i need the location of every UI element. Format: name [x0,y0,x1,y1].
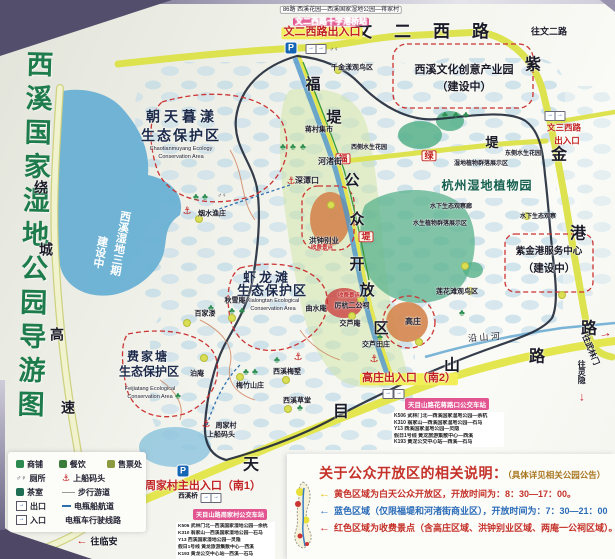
bus-route: K506 武林门北—西溪国家湿地公园—余杭 [394,413,502,420]
parking-icon: P [286,43,297,54]
xialongtan-en1: Xialongtan Ecological [247,299,300,305]
tree-icon: ♣ [175,392,181,401]
shentankou: 深潭口 [295,177,319,185]
tree-icon: ♣ [290,143,296,152]
legend-label: 餐饮 [70,459,86,470]
open-area-notice-panel: 关于公众开放区的相关说明：（具体详见相关公园公告） ←黄色区域为白天公众开放区，… [287,454,615,559]
baijialou: 百家溇 [195,310,216,317]
xialongtan-2: 生态保护区 [237,284,307,298]
bus-station-badge: 天目山路周家村公交车站 [193,509,267,520]
legend-row: →出口电瓶船航道 [16,499,142,513]
road-wener-west: 文二西路 [355,23,511,41]
dir-to-lingyin: 往灵隐 [577,360,585,384]
exit-icon: → [211,493,222,503]
bus-route: K193 黄龙公交中心站—西溪—石马 [394,439,502,446]
shop-icon [16,460,24,468]
photo-edge-left [0,380,5,530]
boat-icon [62,505,71,507]
road-zijingang-3: 港 [570,227,586,244]
legend-label: 步行游道 [78,487,110,498]
path-icon [62,492,75,493]
aquatic-plant-display: 水生植物群落展示区 [413,221,467,227]
feijiatang-2: 生态保护区 [119,366,179,379]
road-tianmushan-1: 天 [243,458,259,475]
bus-station-zhoujiacun: 天目山路周家村公交车站 K506 武林门北—西溪国家湿地公园—余杭K310 翁家… [176,504,275,559]
legend-row: →入口电瓶车行驶线路 [16,513,142,527]
notice-bullet-text: 蓝色区域（仅限福堤和河渚街商业区），开放时间为：7：30—21：00 [334,504,608,517]
xixi-caotang: 西溪草堂 [283,397,311,404]
xialongtan-en2: Conservation Area [250,307,295,313]
poi-dot [228,314,236,322]
notice-arrow-icon: ← [319,505,330,517]
poi-dot [236,373,244,381]
legend-row: ♂♀厕所⚓上船码头 [16,471,142,485]
legend-label: 入口 [30,515,46,526]
station-badge-top: 文二西路十字港桥站 [293,18,369,26]
bus-route: K310 翁家山—西溪国家湿地公园—石马 [178,530,273,537]
boarding-dock: 上船码头 [207,431,235,438]
tree-icon: ♣ [193,193,199,202]
boan: 泊庵 [190,370,204,377]
notice-bullet: ←蓝色区域（仅限福堤和河渚街商业区），开放时间为：7：30—21：00 [319,504,611,517]
bus-route: Y13 西溪国家湿地公园—灵隐 [394,426,502,433]
fudi-badge-2: 堤 [358,231,373,242]
chaotianmuyang-en1: Chaotianmuyang Ecology [150,147,213,153]
legend-label: 售票处 [118,459,142,470]
notice-bullet-text: 黄色区域为白天公众开放区，开放时间为：8：30—17：00。 [334,487,576,500]
dir-to-wenerlu: 往文二路 [531,27,567,36]
zjg-service-1: 紫金港服务中心 [516,247,583,257]
tree-icon: ♣ [453,111,459,120]
tree-icon: ♣ [243,368,249,377]
bus-route: K506 武林门北—西溪国家湿地公园—余杭 [178,523,273,530]
bus-station-badge: 天目山路花蒋路口公交车站 [405,398,489,410]
map-poster: 西溪国家湿地公园导游图 PP→→♂♀→→→→→→⚓⚓⚓⚓⚓♂♀♣♣♣♣♣♣♣♣♣… [0,0,615,559]
creative-park-1: 西溪文化创意产业园 [415,65,514,77]
legend-label: 厕所 [30,473,46,484]
notice-minimap [290,479,316,551]
parking-icon: P [178,466,189,477]
tree-icon: ♣ [459,309,465,318]
jiaoluan: 交芦庵 [340,320,361,327]
food-icon [59,460,67,468]
hongzhong-bieye: 洪钟别业 [309,237,339,245]
road-tianmushan-2: 目 [333,405,349,422]
bus-note-top: 86路 西溪花园—西溪国家湿地公园—蒋家村 [280,6,402,14]
poi-dot [200,354,208,362]
tree-icon: ♣ [463,111,469,120]
wc-icon: ♂♀ [16,475,27,482]
garden-blob [398,121,442,149]
yanshui-yuzhuang: 烟水渔庄 [198,210,226,217]
tree-icon: ♣ [239,307,245,316]
xixi-bridge: 西溪桥 [178,494,198,501]
underwater-gallery: 水下生态观察廊 [430,204,472,210]
dir-to-linan: 往临安 [90,537,117,546]
feijiatang-en2: Conservation Area [127,395,172,401]
enter-icon: → [16,515,27,525]
legend-row: 茶室步行游道 [16,485,142,499]
legend-item-boat: 电瓶船航道 [62,501,114,512]
chaotianmuyang-2: 生态保护区 [141,129,221,144]
xixi-meishu: 西溪梅墅 [273,368,301,375]
notice-title-note: （具体详见相关公园公告） [508,470,606,480]
west-water-garden: 西侧水生花园 [351,145,387,151]
open-area-5: 区 [373,321,388,337]
dock-anchor-icon: ⚓ [294,353,303,363]
road-tianmushan-3: 山 [444,359,460,376]
bus-route: 假日1号线 黄龙旅游集散中心—西溪 [394,433,502,440]
exit-icon: → [555,111,566,121]
legend-label: 茶室 [27,487,43,498]
tree-icon: ♣ [202,193,208,202]
legend-label: 上船码头 [73,473,105,484]
qushuian: 曲水庵 [306,305,327,312]
bus-route: 假日1号线 黄龙旅游集散中心—西溪 [178,544,273,551]
bus-route: K193 黄龙公交中心站—西溪—石马 [178,551,273,558]
entrance-wensan-2: 出入口 [554,137,580,146]
tree-icon: ♣ [274,356,280,365]
notice-bullet-text: 红色区域为收费景点（含高庄区域、洪钟别业区域、两庵一公祠区域）。 [334,521,615,534]
qianjinyang-bird-area: 千金漾观鸟区 [331,64,373,71]
tea-icon [16,488,24,496]
legend-item-cart: 电瓶车行驶线路 [62,515,114,526]
legend-label: 电瓶船航道 [74,501,114,512]
ludi-badge: 绿 [421,150,436,161]
road-raocheng-3: 高 [50,328,64,343]
chaotianmuyang-1: 朝天暮漾 [146,110,218,125]
exit-icon: → [316,44,327,54]
poi-dot [348,312,356,320]
dock-anchor-icon: ⚓ [370,355,379,365]
dir-to-wulinmen-arrow: → [597,325,613,341]
anchor-icon: ⚓ [62,473,70,484]
tree-icon: ♣ [297,404,303,413]
legend-box: 商铺餐饮售票处♂♀厕所⚓上船码头茶室步行游道→出口电瓶船航道→入口电瓶车行驶线路 [8,452,146,532]
notice-title: 关于公众开放区的相关说明： [319,465,508,481]
bus-route: Y13 西溪国家湿地公园—灵隐 [178,537,273,544]
entrance-wensan-1: 文三西路 [547,124,581,133]
notice-bullets: ←黄色区域为白天公众开放区，开放时间为：8：30—17：00。←蓝色区域（仅限福… [319,487,611,534]
legend-item-tea: 茶室 [16,487,62,498]
zjg-service-2: （建设中） [523,263,576,274]
legend-item-path: 步行游道 [62,487,114,498]
fudi-1: 福 [305,77,320,93]
toilet-icon: ♂♀ [218,193,227,199]
paid-spot-2: 收费景点 [338,294,360,300]
zhoujiacun: 周家村 [216,422,237,429]
open-area-3: 开 [349,257,364,273]
legend-item-shop: 商铺 [16,459,59,470]
tree-icon: ♣ [252,368,258,377]
open-area-2: 众 [349,212,364,228]
bus-route: K310 翁家山—西溪国家湿地公园—石马 [394,420,502,427]
legend-row: 商铺餐饮售票处 [16,457,142,471]
open-area-1: 公 [344,173,359,189]
bus-route-list: K506 武林门北—西溪国家湿地公园—余杭K310 翁家山—西溪国家湿地公园—石… [392,412,504,447]
ludi-di: 堤 [485,136,498,150]
road-raocheng-2: 城 [39,243,53,258]
hezhu-street: 河渚街 [318,158,342,166]
dock-anchor-icon: ⚓ [202,420,211,430]
legend-item-enter: →入口 [16,515,62,526]
tree-icon: ♣ [300,143,306,152]
dir-to-lingyin-arrow: ↓ [579,391,585,404]
open-area-4: 放 [359,283,374,299]
chaotianmuyang-en2: Conservation Area [158,155,203,161]
poi-dot [415,338,423,346]
poi-dot [183,319,191,327]
legend-item-wc: ♂♀厕所 [16,473,62,484]
dock-anchor-icon: ⚓ [183,207,192,217]
legend-item-exit: →出口 [16,501,62,512]
legend-item-anchor: ⚓上船码头 [62,473,114,484]
entrance-wener: 文二西路出入口 [282,27,363,39]
toilet-icon: ♂♀ [330,47,339,53]
jiaolu-tianzhuang: 交芦田庄 [362,341,390,348]
dir-to-linan-arrow: ← [77,536,88,548]
east-water-garden: 东侧水生花园 [505,151,541,157]
feijiatang-en1: Feijiatang Ecological [125,387,175,393]
road-zijingang-2: 金 [551,148,567,165]
poi-dot [327,201,335,209]
poi-dot [461,262,469,270]
lihang-ergongci: 厉杭二公祠 [335,302,370,309]
ticket-icon [107,460,115,468]
paid-spot-1: 收费景点 [311,246,333,252]
notice-bullet: ←黄色区域为白天公众开放区，开放时间为：8：30—17：00。 [319,487,611,500]
exit-icon: → [16,501,27,511]
road-raocheng-4: 速 [61,401,75,416]
legend-label: 出口 [30,501,46,512]
legend-label: 电瓶车行驶线路 [65,515,121,526]
entrance-zhoujiacun: 周家村主出入口（南1） [145,481,261,493]
creative-park-2: （建设中） [437,82,492,94]
tree-icon: ♣ [280,143,286,152]
road-tianmushan-4: 路 [529,350,545,367]
notice-bullet: ←红色区域为收费景点（含高庄区域、洪钟别业区域、两庵一公祠区域）。 [319,521,611,534]
bus-route-list: K506 武林门北—西溪国家湿地公园—余杭K310 翁家山—西溪国家湿地公园—石… [176,522,275,559]
legend-item-ticket: 售票处 [107,459,142,470]
legend-item-food: 餐饮 [59,459,107,470]
notice-arrow-icon: ← [319,522,330,534]
qiuxuean: 秋雪庵 [225,297,246,304]
road-raocheng-1: 绕 [34,181,48,196]
poi-dot [284,405,292,413]
lianhuatan-bird-area: 莲花滩观鸟区 [436,288,478,295]
road-zijingang-1: 紫 [525,58,541,75]
meizhu-shanzhuang: 梅竹山庄 [236,382,264,389]
botanical-garden: 杭州湿地植物园 [441,180,532,193]
legend-label: 商铺 [27,459,43,470]
notice-arrow-icon: ← [319,488,330,500]
feijiatang-1: 费家塘 [127,351,169,364]
gaozhuang: 高庄 [405,318,421,326]
tree-icon: ♣ [442,111,448,120]
bus-station-huajiang: 天目山路花蒋路口公交车站 K506 武林门北—西溪国家湿地公园—余杭K310 翁… [392,394,504,447]
poi-dot [558,291,566,299]
fudi-2: 堤 [326,110,341,126]
wetland-plant-display: 湿地植物群落展示区 [454,161,508,167]
jiangcun-market: 蒋村集市 [305,126,333,133]
underwater-observe: 水下生态观察 [520,214,556,220]
poi-dot [282,376,290,384]
pond [139,427,211,467]
garden-blob [436,111,464,131]
